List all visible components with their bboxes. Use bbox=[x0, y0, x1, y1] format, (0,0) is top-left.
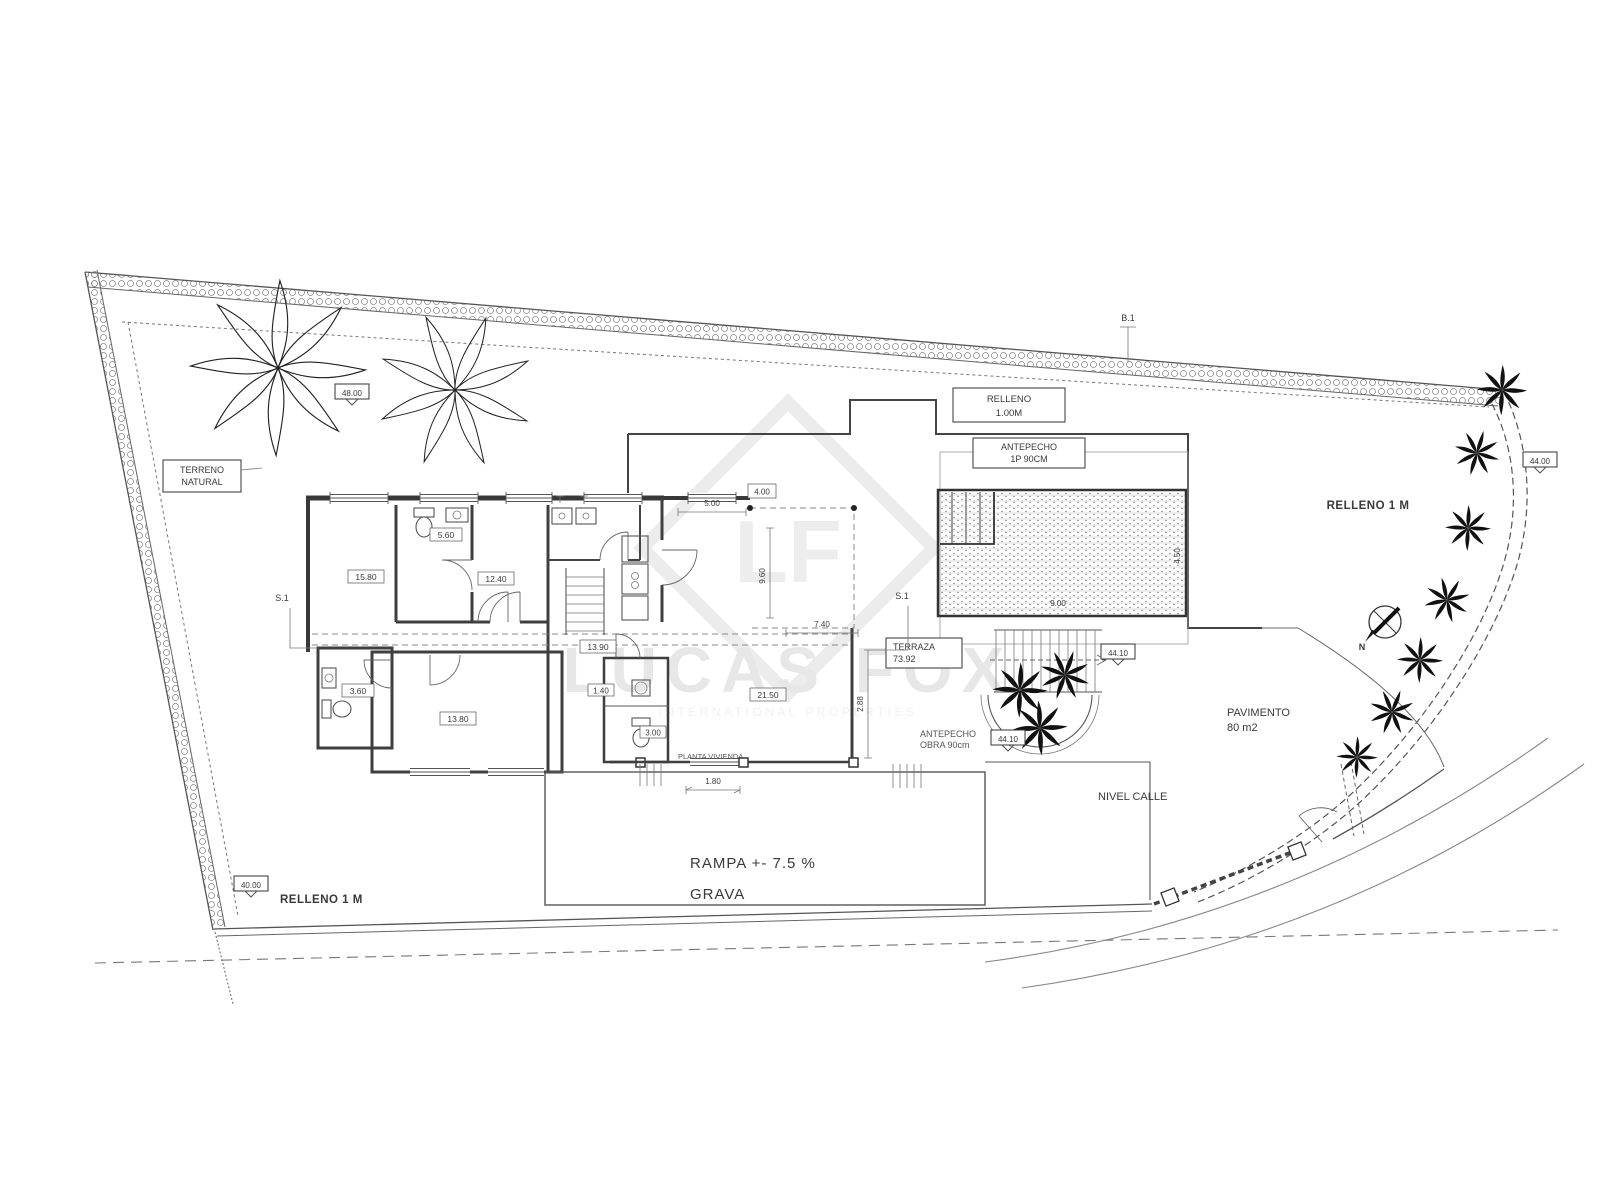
svg-text:13.90: 13.90 bbox=[587, 642, 609, 652]
pool-depth-dimension: 4.50 bbox=[1173, 548, 1182, 564]
svg-text:44.10: 44.10 bbox=[998, 735, 1019, 744]
top-boundary-hatch-band bbox=[85, 272, 1502, 406]
svg-text:40.00: 40.00 bbox=[241, 881, 262, 890]
palm-tree-icon bbox=[1033, 643, 1097, 707]
right-boundary-inner-curve bbox=[1194, 404, 1513, 892]
gate-pillar bbox=[1288, 842, 1306, 860]
pavement-boundary-curve bbox=[1262, 628, 1444, 767]
svg-text:15.80: 15.80 bbox=[355, 572, 377, 582]
svg-text:9.60: 9.60 bbox=[758, 568, 767, 584]
svg-text:1.40: 1.40 bbox=[593, 687, 609, 696]
gate-pillar bbox=[1161, 888, 1179, 906]
street-curve-outer bbox=[985, 738, 1548, 962]
palm-tree-icon bbox=[1416, 569, 1479, 632]
pergola-post-dot bbox=[747, 505, 753, 511]
section-marker: B.1 bbox=[1120, 313, 1136, 362]
room-area-tag: 3.60 bbox=[342, 684, 374, 697]
svg-text:S.1: S.1 bbox=[895, 591, 909, 601]
interior-stairs bbox=[566, 568, 604, 635]
north-letter: N bbox=[1359, 642, 1366, 652]
svg-text:RELLENO: RELLENO bbox=[987, 394, 1031, 405]
pool-width-dimension: 9.00 bbox=[1050, 599, 1066, 608]
watermark-logo-letters: LF bbox=[734, 502, 842, 601]
street-edge-dashed-line bbox=[95, 930, 1558, 963]
nivel-calle-label: NIVEL CALLE bbox=[1098, 791, 1167, 803]
svg-text:4.00: 4.00 bbox=[754, 488, 770, 497]
palm-tree-icon bbox=[1449, 425, 1505, 481]
svg-text:1.80: 1.80 bbox=[705, 777, 721, 786]
svg-text:TERRAZA: TERRAZA bbox=[893, 642, 935, 652]
svg-text:OBRA 90cm: OBRA 90cm bbox=[920, 740, 970, 750]
entry-steps bbox=[893, 764, 921, 788]
sink-icon bbox=[325, 674, 333, 682]
antepecho-obra-label: ANTEPECHO OBRA 90cm bbox=[920, 729, 976, 750]
svg-text:44.00: 44.00 bbox=[1530, 457, 1551, 466]
svg-text:3.60: 3.60 bbox=[350, 686, 367, 696]
window bbox=[506, 492, 552, 504]
svg-text:48.00: 48.00 bbox=[342, 389, 363, 398]
window bbox=[410, 767, 470, 777]
dimension: 4.00 bbox=[748, 484, 776, 498]
palm-tree-icon bbox=[1477, 365, 1528, 416]
spot-level-marker: 44.00 bbox=[1523, 452, 1557, 473]
svg-text:5.00: 5.00 bbox=[704, 499, 720, 508]
gate-side-wall-curve bbox=[1333, 769, 1444, 839]
svg-text:7.40: 7.40 bbox=[814, 620, 830, 629]
floor-plan-page: LF LUCAS FOX INTERNATIONAL PROPERTIES bbox=[0, 0, 1600, 1200]
bottom-boundary-wall-inner bbox=[217, 911, 1152, 936]
svg-text:21.50: 21.50 bbox=[757, 690, 779, 700]
window bbox=[584, 492, 642, 504]
room-area-tag: 5.60 bbox=[430, 528, 462, 541]
north-compass-icon: N bbox=[1359, 606, 1401, 652]
sink-counter bbox=[446, 508, 468, 522]
bottom-boundary-wall-outer bbox=[214, 904, 1152, 929]
walkway-edge bbox=[1341, 764, 1354, 836]
svg-text:12.40: 12.40 bbox=[485, 574, 507, 584]
svg-text:NATURAL: NATURAL bbox=[181, 477, 222, 487]
svg-text:2.88: 2.88 bbox=[856, 696, 865, 712]
sink-icon bbox=[453, 511, 461, 519]
swimming-pool bbox=[938, 490, 1186, 616]
spot-level-marker: 48.00 bbox=[335, 384, 369, 405]
rampa-label: RAMPA +- 7.5 % bbox=[690, 855, 816, 872]
room-area-tag: 1.40 bbox=[588, 684, 614, 696]
toilet-icon bbox=[333, 701, 351, 717]
spot-level-marker: 44.10 bbox=[991, 730, 1025, 751]
svg-text:80 m2: 80 m2 bbox=[1227, 722, 1258, 734]
relleno-top-label: RELLENO 1.00M bbox=[953, 388, 1065, 422]
spot-level-marker: 44.10 bbox=[1101, 644, 1135, 665]
sink-counter bbox=[322, 668, 336, 688]
svg-text:73.92: 73.92 bbox=[893, 654, 916, 664]
window bbox=[420, 492, 478, 504]
utility-room-walls bbox=[318, 648, 392, 748]
room-area-tag: 13.90 bbox=[580, 640, 616, 653]
antepecho-pool-label: ANTEPECHO 1P 90CM bbox=[973, 438, 1085, 468]
terraza-area-label: TERRAZA 73.92 bbox=[886, 638, 962, 668]
ramp-court bbox=[545, 764, 985, 905]
palm-tree-icon bbox=[1363, 683, 1422, 742]
window bbox=[330, 492, 388, 504]
planta-note: PLANTA VIVIENDA bbox=[678, 752, 743, 761]
palm-tree-icon bbox=[1445, 505, 1491, 551]
svg-text:S.1: S.1 bbox=[275, 593, 289, 603]
left-inner-fence-line bbox=[128, 322, 238, 916]
terreno-natural-label: TERRENO NATURAL bbox=[163, 460, 262, 492]
pavimento-label: PAVIMENTO 80 m2 bbox=[1227, 707, 1290, 734]
watermark-tagline: INTERNATIONAL PROPERTIES bbox=[658, 705, 917, 719]
pergola-post-dot bbox=[851, 505, 857, 511]
room-area-tag: 13.80 bbox=[440, 712, 476, 725]
svg-text:PAVIMENTO: PAVIMENTO bbox=[1227, 707, 1290, 719]
relleno-right-label: RELLENO 1 M bbox=[1327, 500, 1410, 512]
door-swing bbox=[430, 655, 460, 685]
svg-text:ANTEPECHO: ANTEPECHO bbox=[920, 729, 976, 739]
svg-text:13.80: 13.80 bbox=[447, 714, 469, 724]
palm-tree-icon bbox=[1397, 637, 1443, 683]
window bbox=[488, 767, 544, 777]
left-boundary-tail bbox=[215, 932, 233, 1004]
porch-column bbox=[849, 758, 858, 767]
door-swing bbox=[442, 560, 472, 590]
svg-text:1P 90CM: 1P 90CM bbox=[1010, 454, 1047, 464]
svg-text:1.00M: 1.00M bbox=[996, 408, 1022, 419]
svg-text:B.1: B.1 bbox=[1121, 313, 1135, 323]
svg-text:5.60: 5.60 bbox=[438, 530, 455, 540]
site-plan-drawing: LF LUCAS FOX INTERNATIONAL PROPERTIES bbox=[0, 0, 1600, 1200]
room-area-tag: 15.80 bbox=[348, 570, 384, 583]
svg-text:44.10: 44.10 bbox=[1108, 649, 1129, 658]
toilet-cistern bbox=[414, 508, 434, 517]
gate-door-swing bbox=[1299, 808, 1337, 842]
door-swing bbox=[490, 592, 520, 622]
svg-text:ANTEPECHO: ANTEPECHO bbox=[1001, 442, 1057, 452]
room-area-tag: 21.50 bbox=[750, 688, 786, 701]
toilet-cistern bbox=[322, 700, 331, 718]
svg-text:3.00: 3.00 bbox=[645, 729, 661, 738]
toilet-icon bbox=[416, 517, 432, 537]
spot-level-marker: 40.00 bbox=[234, 876, 268, 897]
relleno-bottom-label: RELLENO 1 M bbox=[280, 894, 363, 906]
dimension: 1.80 bbox=[686, 777, 740, 794]
grava-label: GRAVA bbox=[690, 886, 745, 903]
walkway-edge bbox=[1351, 762, 1364, 834]
toilet-cistern bbox=[632, 718, 650, 726]
room-area-tag: 3.00 bbox=[640, 726, 666, 738]
svg-text:TERRENO: TERRENO bbox=[180, 465, 224, 475]
room-area-tag: 12.40 bbox=[478, 572, 514, 585]
